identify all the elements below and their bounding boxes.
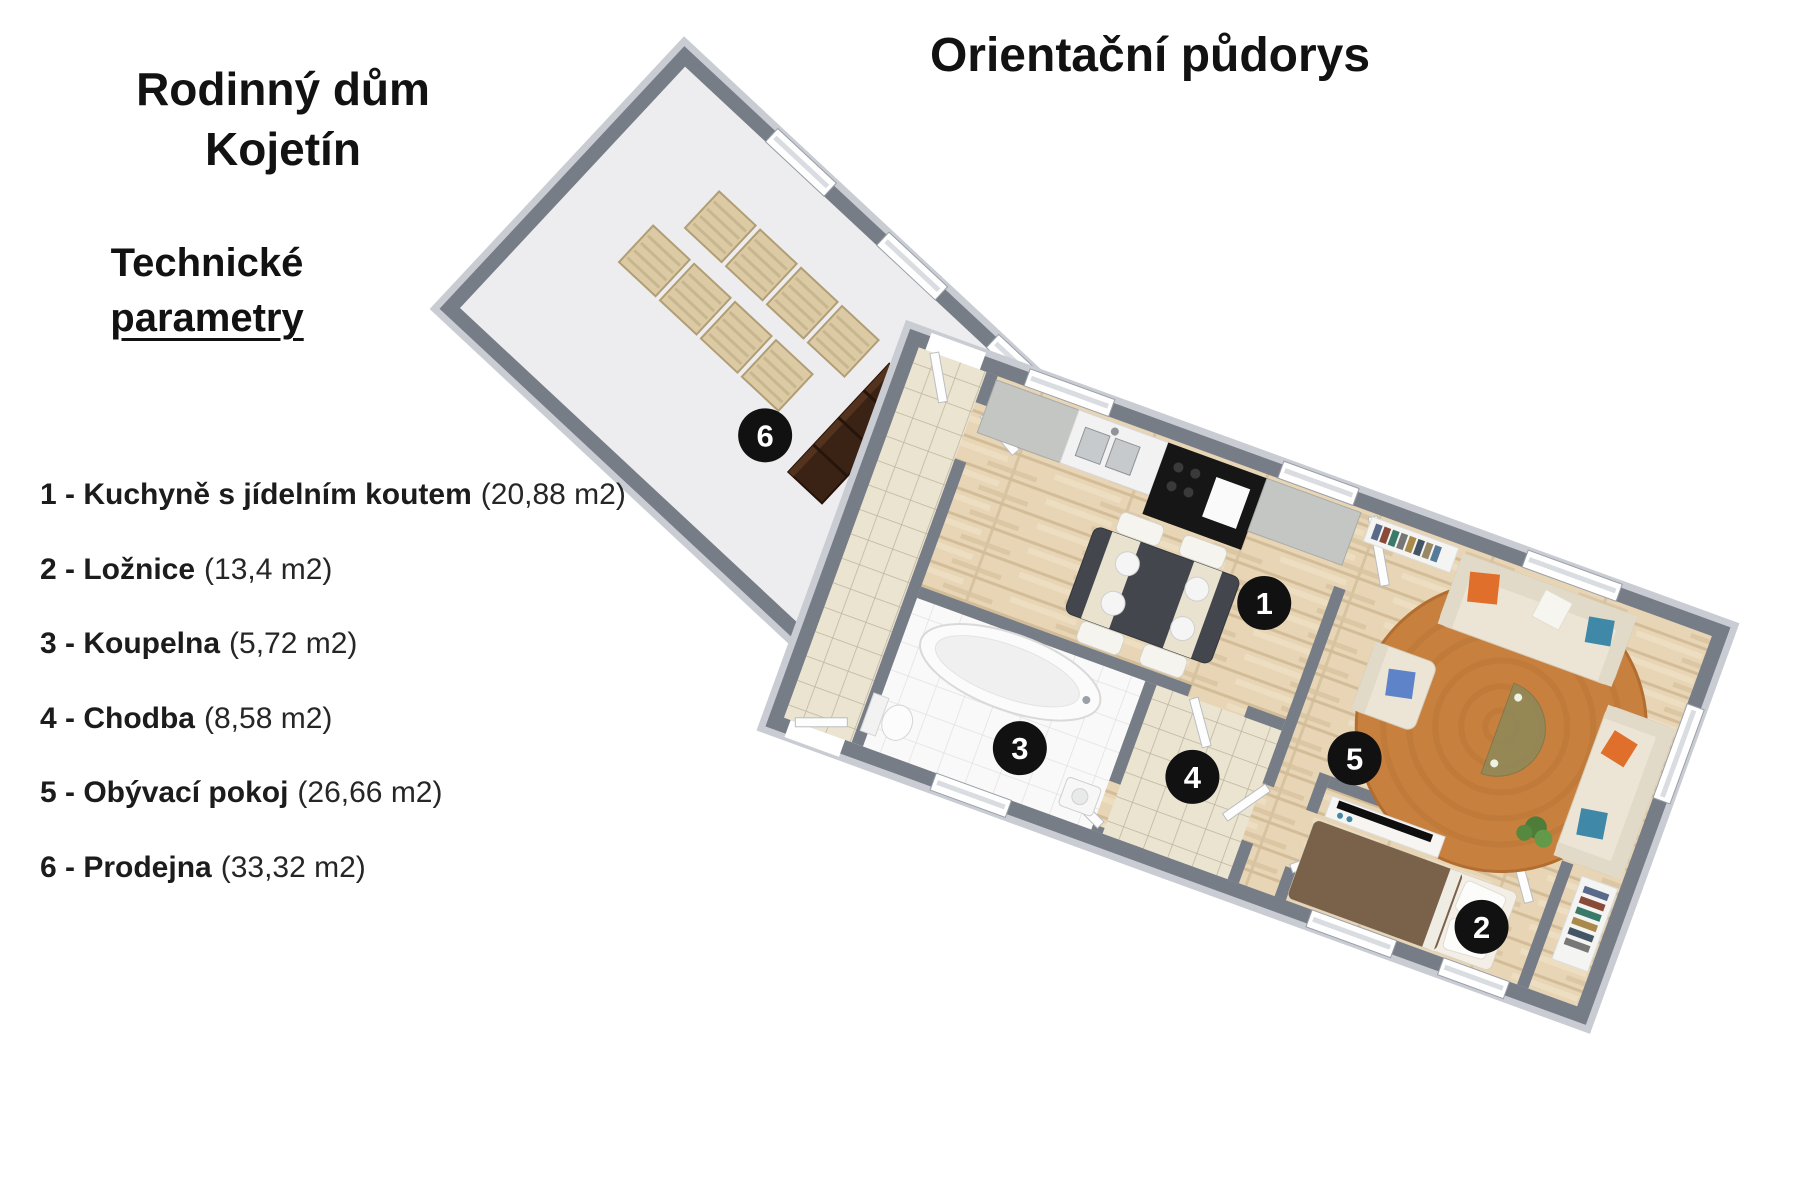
page: { "header": { "plan_title": "Orientační … xyxy=(0,0,1800,1200)
badge-4-number: 4 xyxy=(1184,760,1202,795)
badge-5-number: 5 xyxy=(1346,741,1363,776)
legend-item-6: 6 - Prodejna(33,32 m2) xyxy=(40,851,366,885)
pillow-orange xyxy=(1467,572,1500,605)
pillow-blue xyxy=(1385,669,1415,699)
legend-item-4: 4 - Chodba(8,58 m2) xyxy=(40,702,332,736)
legend-item-2: 2 - Ložnice(13,4 m2) xyxy=(40,553,332,587)
tech-params-heading: Technické parametry xyxy=(52,236,362,346)
badge-3-number: 3 xyxy=(1011,731,1028,766)
main-house: 1 2 3 4 5 xyxy=(761,324,1735,1029)
room-badge-4: 4 xyxy=(1165,750,1219,804)
tech-heading-line2: parametry xyxy=(52,291,362,346)
pillow-teal xyxy=(1576,808,1608,840)
pillow-teal xyxy=(1585,616,1615,646)
plan-title: Orientační půdorys xyxy=(830,28,1470,83)
room-badge-6: 6 xyxy=(738,408,792,462)
badge-6-number: 6 xyxy=(757,418,774,453)
room-badge-1: 1 xyxy=(1237,576,1291,630)
property-title: Rodinný dům Kojetín xyxy=(58,60,508,180)
tech-heading-line1: Technické xyxy=(52,236,362,291)
legend-item-1: 1 - Kuchyně s jídelním koutem(20,88 m2) xyxy=(40,478,626,512)
badge-1-number: 1 xyxy=(1256,586,1273,621)
legend-item-3: 3 - Koupelna(5,72 m2) xyxy=(40,627,357,661)
floor-plan: 6 xyxy=(0,0,1800,1200)
property-title-line2: Kojetín xyxy=(58,120,508,180)
room-badge-2: 2 xyxy=(1455,900,1509,954)
property-title-line1: Rodinný dům xyxy=(58,60,508,120)
legend-item-5: 5 - Obývací pokoj(26,66 m2) xyxy=(40,776,443,810)
room-badge-3: 3 xyxy=(993,721,1047,775)
badge-2-number: 2 xyxy=(1473,910,1490,945)
room-badge-5: 5 xyxy=(1328,731,1382,785)
